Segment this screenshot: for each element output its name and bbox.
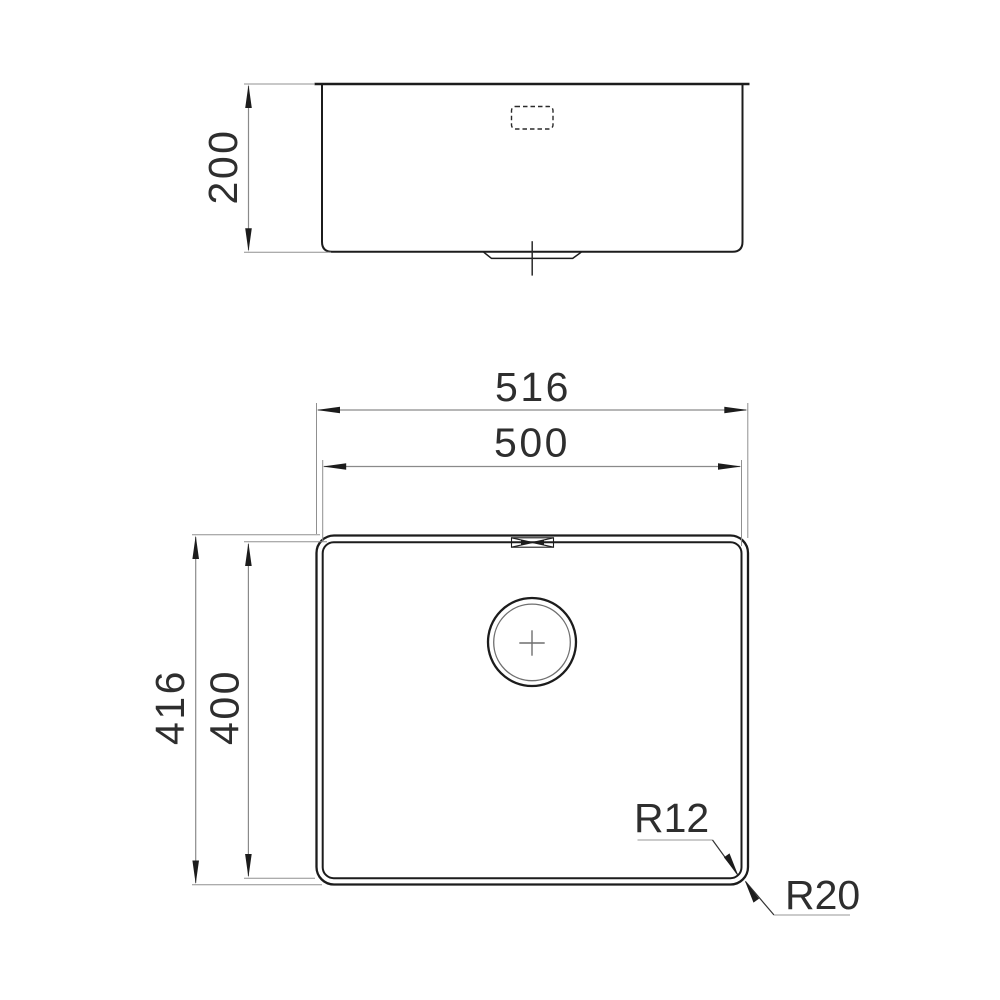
svg-text:516: 516 <box>495 364 571 410</box>
svg-text:R12: R12 <box>634 795 709 841</box>
svg-text:500: 500 <box>494 420 570 466</box>
svg-text:416: 416 <box>147 669 193 745</box>
svg-text:R20: R20 <box>785 872 860 918</box>
svg-text:200: 200 <box>200 129 246 205</box>
svg-text:400: 400 <box>202 669 248 745</box>
